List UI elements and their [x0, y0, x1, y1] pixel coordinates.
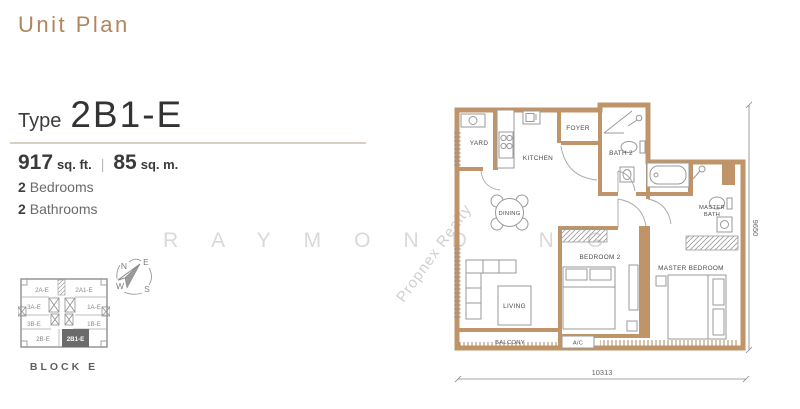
page-title: Unit Plan	[18, 12, 130, 38]
area-sqm-unit: sq. m.	[141, 157, 179, 172]
key-plan-unit-1a-e: 1A-E	[87, 304, 101, 311]
key-plan-unit-2a1-e: 2A1-E	[75, 287, 92, 294]
bedrooms-fact: 2Bedrooms	[18, 179, 94, 195]
key-plan-unit-2a-e: 2A-E	[35, 287, 49, 294]
dimension-right-value: 9650	[751, 220, 760, 237]
heading-divider	[10, 142, 366, 144]
key-plan-unit-1b-e: 1B-E	[87, 321, 101, 328]
dimension-bottom: 10313	[455, 368, 749, 382]
bath2-sink	[620, 167, 634, 182]
room-label-ac: A/C	[573, 341, 583, 347]
unit-type-name: 2B1-E	[70, 94, 183, 136]
dimension-bottom-value: 10313	[592, 368, 613, 377]
compass-east-label: E	[143, 257, 149, 267]
bedrooms-label: Bedrooms	[30, 179, 94, 195]
planter-ledge	[600, 340, 738, 346]
bath2-shower	[604, 111, 642, 133]
room-label-bath2: BATH 2	[609, 150, 633, 157]
bedroom2-wardrobe	[561, 229, 607, 242]
compass-icon: N E W S	[108, 252, 163, 307]
room-label-dining: DINING	[498, 211, 520, 217]
unit-type-prefix: Type	[18, 110, 61, 133]
yard-louver-window	[454, 130, 461, 168]
floor-plan: YARD KITCHEN FOYER BATH 2 DINING MASTER …	[450, 95, 760, 390]
kitchen-counter	[497, 110, 514, 168]
compass-north-label: N	[121, 261, 127, 271]
room-label-living: LIVING	[503, 303, 526, 310]
area-sqft-value: 917	[18, 151, 53, 175]
bedroom2-bed	[563, 267, 615, 329]
room-label-master-bedroom: MASTER BEDROOM	[658, 265, 724, 272]
master-bed	[668, 275, 726, 339]
block-label: BLOCK E	[18, 361, 110, 373]
washing-machine	[461, 114, 485, 127]
key-plan-lift-shaft	[58, 280, 65, 295]
living-window	[454, 245, 461, 320]
bathtub	[647, 163, 689, 187]
area-sqm-value: 85	[113, 151, 136, 175]
master-bath-sink	[717, 217, 732, 232]
room-label-master-bath-2: BATH	[704, 212, 720, 218]
master-wardrobe	[686, 236, 738, 250]
key-plan-unit-3b-e: 3B-E	[27, 321, 41, 328]
room-label-foyer: FOYER	[566, 125, 590, 132]
bedroom2-side-table	[627, 321, 637, 331]
area-sqft-unit: sq. ft.	[57, 157, 92, 172]
room-label-balcony: BALCONY	[495, 340, 525, 346]
dimension-right: 9650	[746, 102, 760, 353]
room-label-bedroom2: BEDROOM 2	[579, 254, 620, 261]
bedroom2-cabinet	[629, 265, 638, 310]
unit-type-heading: Type 2B1-E	[18, 94, 183, 136]
bedrooms-count: 2	[18, 179, 26, 195]
bathrooms-label: Bathrooms	[30, 201, 98, 217]
master-shower	[693, 166, 705, 179]
room-label-yard: YARD	[470, 140, 489, 147]
bathrooms-count: 2	[18, 201, 26, 217]
compass-south-label: S	[144, 284, 150, 294]
unit-area: 917 sq. ft. | 85 sq. m.	[18, 151, 178, 175]
room-label-master-bath-1: MASTER	[699, 205, 725, 211]
kitchen-sink	[523, 111, 540, 124]
key-plan-unit-2b1-e: 2B1-E	[67, 336, 85, 343]
area-separator: |	[101, 156, 105, 172]
compass-west-label: W	[116, 281, 124, 291]
bathrooms-fact: 2Bathrooms	[18, 201, 98, 217]
master-side-table	[656, 276, 666, 286]
key-plan-unit-2b-e: 2B-E	[36, 336, 50, 343]
key-plan-core	[49, 298, 75, 325]
key-plan-unit-3a-e: 3A-E	[27, 304, 41, 311]
block-key-plan: 2A-E 2A1-E 3A-E 1A-E 3B-E 1B-E 2B-E 2B1-…	[18, 277, 110, 353]
room-label-kitchen: KITCHEN	[523, 155, 553, 162]
